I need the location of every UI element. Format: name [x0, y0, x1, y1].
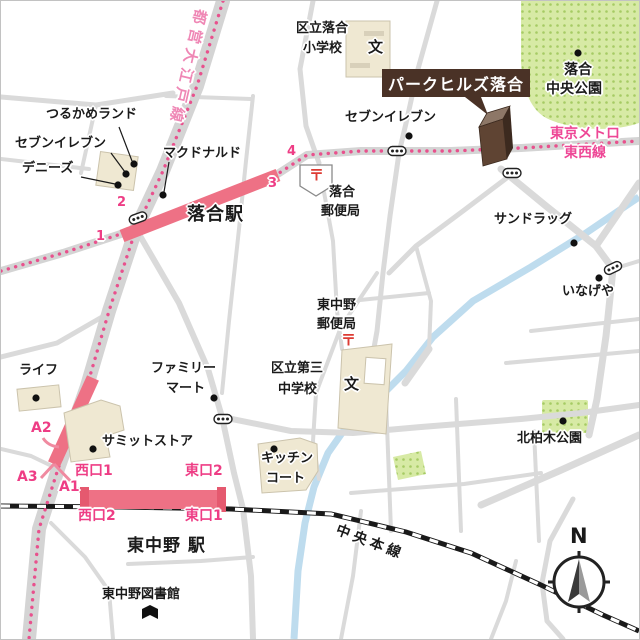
- poi-dot-tsurukame: [130, 160, 137, 167]
- poi-label-kitchencourt-1: キッチン: [261, 452, 313, 466]
- poi-dot-seveneleven-north: [405, 132, 412, 139]
- tozai-line-label-2: 東西線: [564, 146, 606, 161]
- post-mark-higashinakano: 〒: [341, 333, 356, 349]
- ochiai-exit-4: 4: [287, 145, 296, 159]
- park-small-area: [393, 451, 426, 480]
- parkhills-building-icon: [465, 97, 513, 166]
- poi-dot-seveneleven-west: [122, 170, 129, 177]
- poi-label-sundrug: サンドラッグ: [494, 213, 572, 227]
- poi-label-seveneleven-north: セブンイレブン: [345, 111, 436, 125]
- ochiai-exit-3: 3: [268, 177, 277, 191]
- school-label-daisan-2: 中学校: [278, 383, 317, 397]
- parkhills-pointer: [465, 97, 488, 115]
- school-label-ochiai-es-2: 小学校: [303, 42, 342, 56]
- school-label-ochiai-es-1: 区立落合: [296, 22, 348, 36]
- ochiai-exit-2: 2: [117, 196, 126, 210]
- higashinakano-station-label: 東中野 駅: [127, 538, 206, 556]
- poi-label-library: 東中野図書館: [102, 588, 180, 602]
- poi-label-kitchencourt-2: コート: [266, 472, 305, 486]
- school-mark-daisan: 文: [344, 377, 359, 393]
- exit-west1: 西口1: [75, 464, 113, 479]
- poi-dot-familymart: [210, 394, 217, 401]
- poi-dot-dennys: [114, 181, 121, 188]
- post-mark-ochiai: 〒: [309, 168, 324, 184]
- poi-dot-mcdonalds: [159, 191, 166, 198]
- poi-label-familymart-1: ファミリー: [151, 362, 216, 376]
- exit-east1: 東口1: [185, 509, 223, 524]
- poi-dot-inageya: [595, 274, 602, 281]
- poi-label-summit: サミットストア: [102, 435, 193, 449]
- park-label-kitakashiwagi: 北柏木公園: [517, 432, 582, 446]
- exit-a1: A1: [59, 480, 80, 495]
- parkhills-landmark-label: パークヒルズ落合: [382, 69, 530, 97]
- park-label-ochiai-chuo-1: 落合: [564, 63, 592, 78]
- post-label-ochiai-1: 落合: [329, 186, 355, 200]
- poi-label-tsurukame: つるかめランド: [46, 108, 137, 122]
- poi-label-familymart-2: マート: [166, 382, 205, 396]
- exit-east2: 東口2: [185, 464, 223, 479]
- exit-west2: 西口2: [78, 509, 116, 524]
- school-label-daisan-1: 区立第三: [271, 362, 323, 376]
- exit-a2-connector: [43, 438, 59, 447]
- ochiai-exit-1: 1: [96, 230, 105, 244]
- street-map: 都営大江戸線 東京メトロ 東西線 中央本線 落合駅 東中野 駅 1 2 3 4 …: [0, 0, 640, 640]
- post-label-higashinakano-1: 東中野: [317, 299, 356, 313]
- park-label-ochiai-chuo-2: 中央公園: [546, 82, 602, 97]
- poi-label-dennys: デニーズ: [22, 162, 73, 176]
- jr-station-bar: [81, 490, 226, 509]
- school-mark-ochiai-es: 文: [368, 40, 383, 56]
- poi-dot-park-kitakashiwagi: [559, 417, 566, 424]
- exit-a2: A2: [31, 421, 52, 436]
- poi-label-mcdonalds: マクドナルド: [163, 147, 241, 161]
- poi-dot-summit: [89, 445, 96, 452]
- post-label-higashinakano-2: 郵便局: [317, 318, 356, 332]
- poi-label-life: ライフ: [19, 364, 58, 378]
- compass-north-label: N: [570, 525, 588, 547]
- poi-label-inageya: いなげや: [562, 285, 614, 299]
- compass-rose: [548, 551, 610, 613]
- poi-label-seveneleven-west: セブンイレブン: [15, 137, 106, 151]
- tozai-line-label-1: 東京メトロ: [550, 127, 620, 142]
- poi-dot-sundrug: [570, 239, 577, 246]
- book-icon: [142, 605, 158, 619]
- poi-dot-park-ochiai-chuo: [574, 49, 581, 56]
- exit-a3: A3: [17, 470, 38, 485]
- poi-dot-life: [32, 394, 39, 401]
- ochiai-station-label: 落合駅: [187, 206, 244, 225]
- post-label-ochiai-2: 郵便局: [321, 205, 360, 219]
